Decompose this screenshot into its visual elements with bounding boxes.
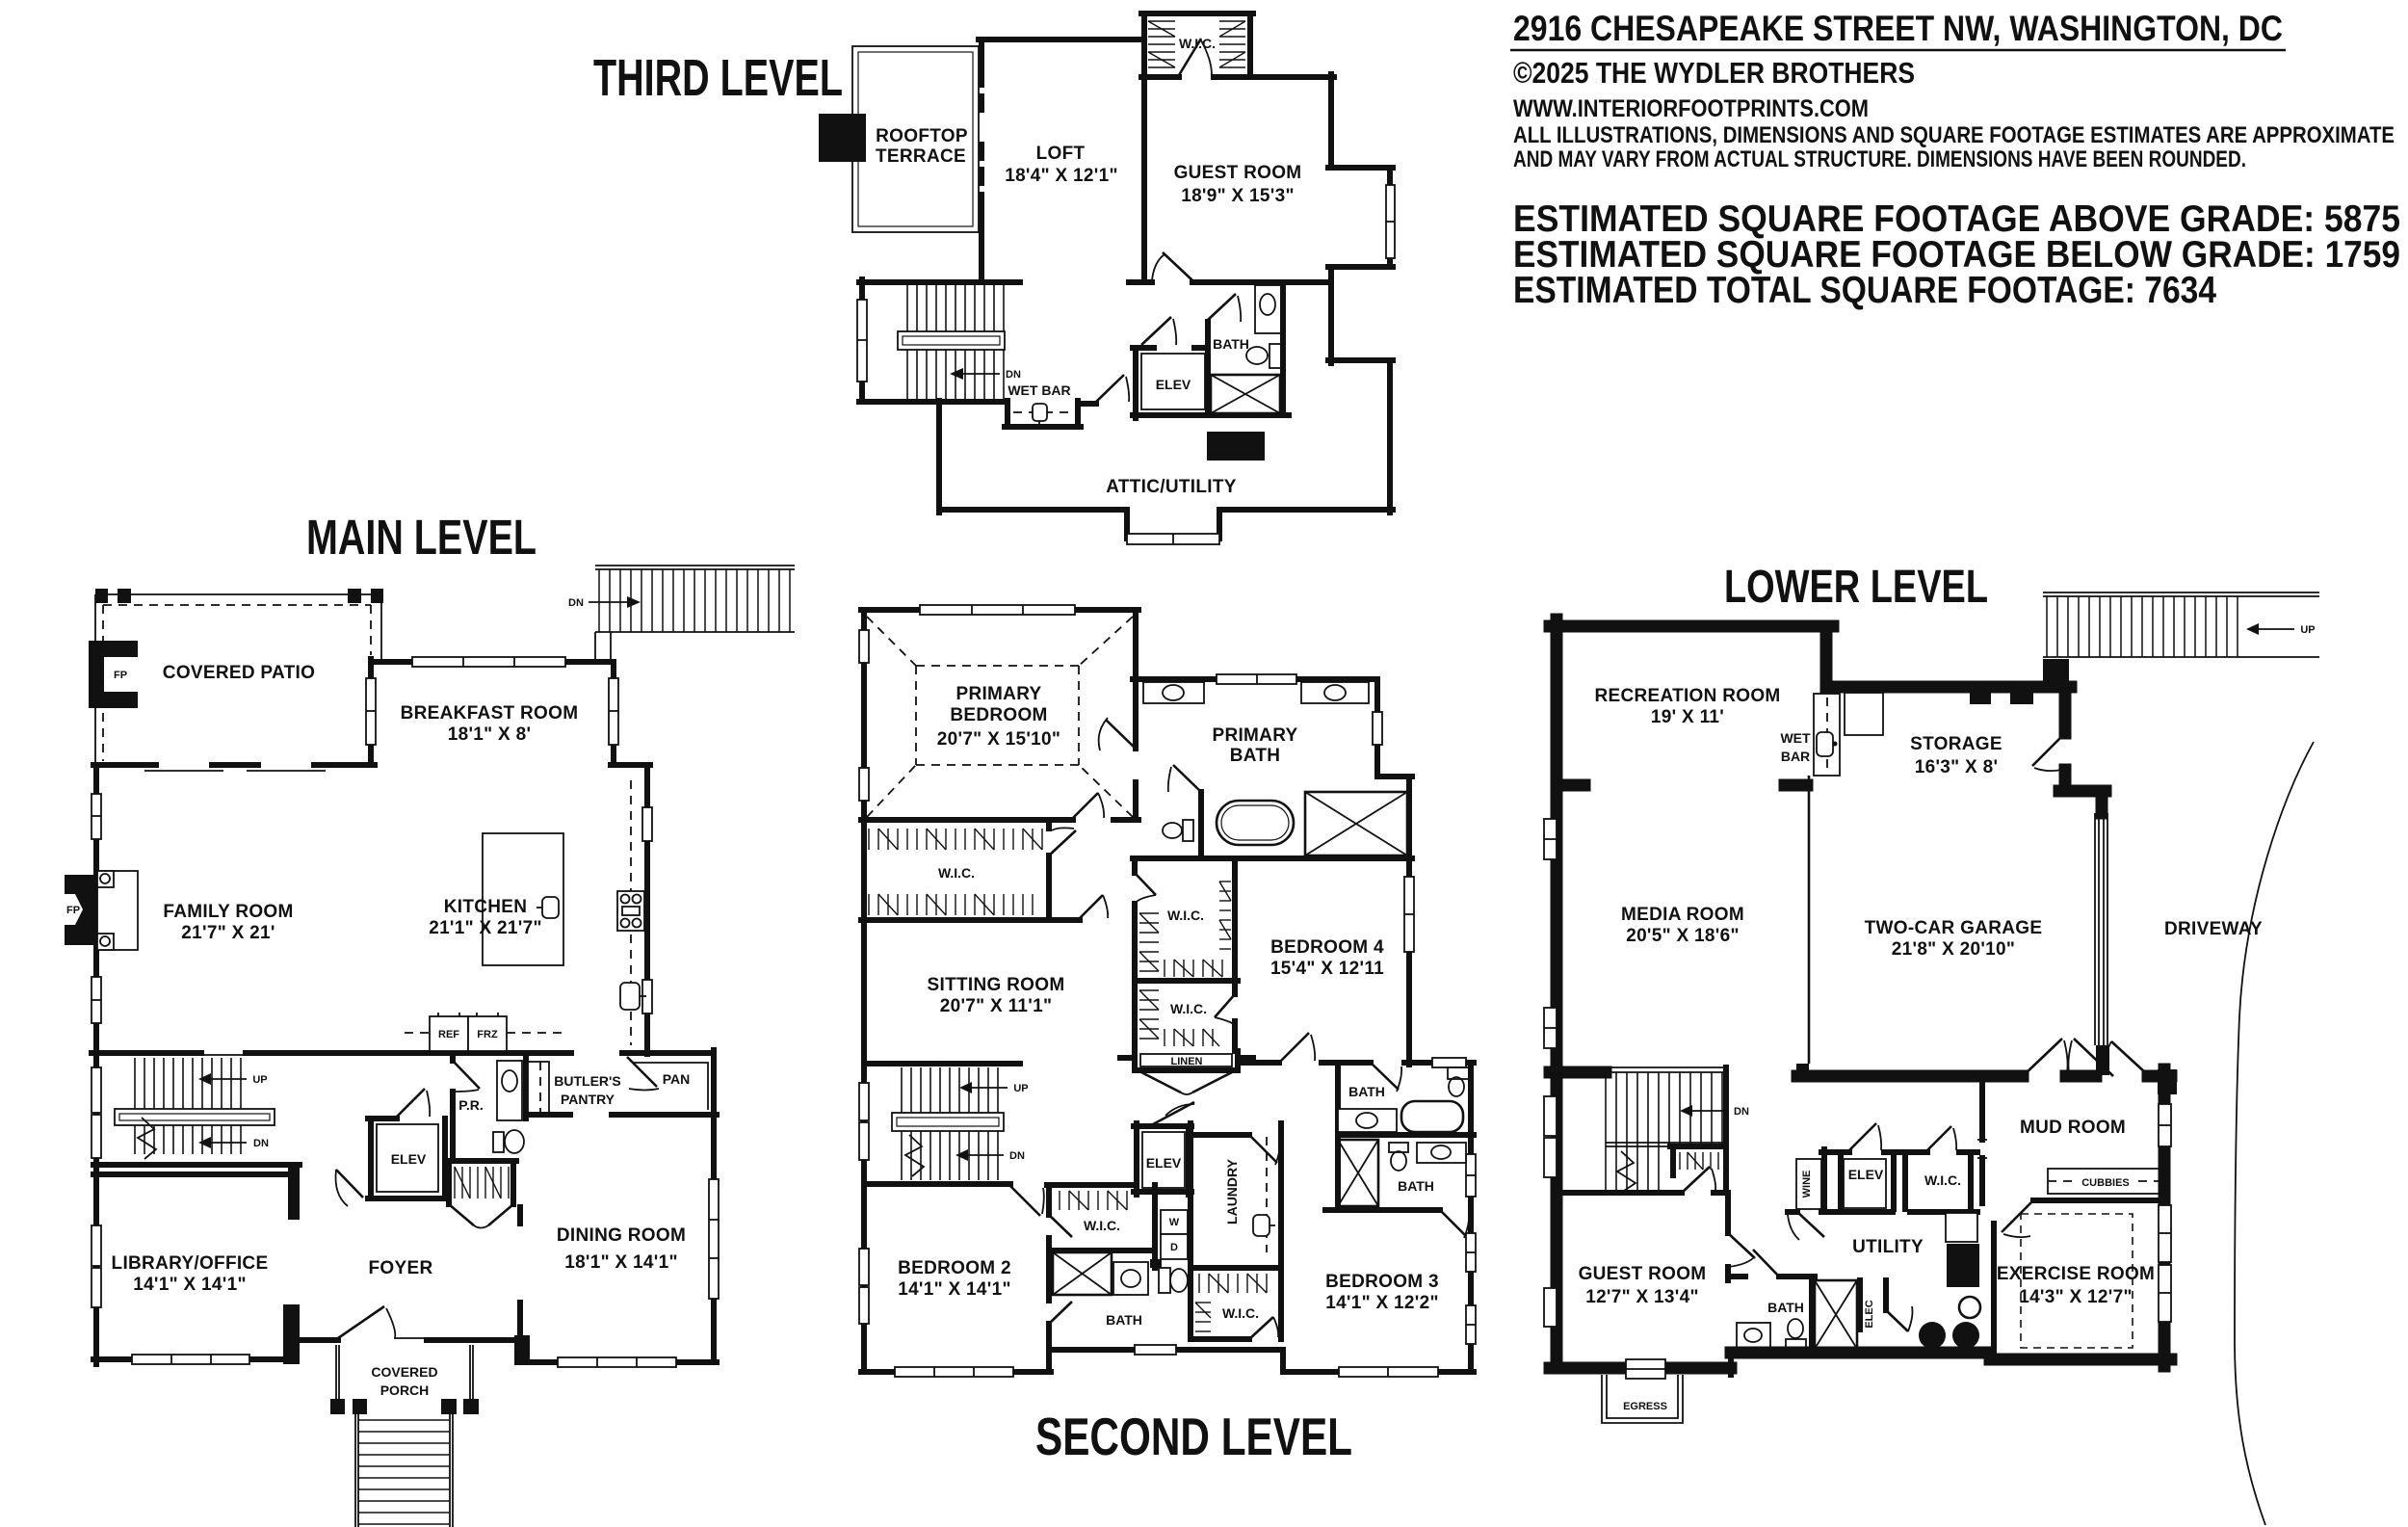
svg-text:BATH: BATH: [1106, 1312, 1142, 1328]
svg-text:PANTRY: PANTRY: [561, 1092, 615, 1107]
svg-text:14'1" X 14'1": 14'1" X 14'1": [133, 1275, 247, 1295]
svg-text:LAUNDRY: LAUNDRY: [1224, 1158, 1240, 1224]
svg-text:14'1" X 14'1": 14'1" X 14'1": [898, 1279, 1011, 1300]
svg-text:BATH: BATH: [1348, 1084, 1385, 1099]
svg-text:21'8" X 20'10": 21'8" X 20'10": [1892, 939, 2015, 960]
svg-text:GUEST ROOM: GUEST ROOM: [1174, 163, 1302, 183]
svg-text:W: W: [1169, 1217, 1180, 1228]
svg-text:WET BAR: WET BAR: [1008, 382, 1070, 398]
svg-text:W.I.C.: W.I.C.: [1924, 1172, 1961, 1188]
svg-text:18'9" X 15'3": 18'9" X 15'3": [1181, 186, 1295, 206]
svg-text:FAMILY ROOM: FAMILY ROOM: [163, 902, 293, 922]
svg-text:BUTLER'S: BUTLER'S: [554, 1073, 620, 1089]
svg-text:19' X 11': 19' X 11': [1651, 707, 1724, 727]
svg-text:PRIMARY: PRIMARY: [1212, 725, 1297, 746]
svg-text:STORAGE: STORAGE: [1910, 734, 2002, 754]
svg-text:ELEV: ELEV: [391, 1151, 427, 1167]
svg-text:ROOFTOP: ROOFTOP: [876, 126, 968, 146]
svg-text:BREAKFAST ROOM: BREAKFAST ROOM: [401, 703, 579, 724]
svg-text:20'7" X 11'1": 20'7" X 11'1": [940, 996, 1053, 1016]
svg-text:EGRESS: EGRESS: [1623, 1401, 1667, 1412]
svg-text:BATH: BATH: [1398, 1178, 1434, 1194]
svg-text:UP: UP: [252, 1074, 267, 1086]
svg-text:WWW.INTERIORFOOTPRINTS.COM: WWW.INTERIORFOOTPRINTS.COM: [1513, 95, 1869, 122]
svg-text:SITTING ROOM: SITTING ROOM: [928, 975, 1065, 995]
svg-text:MEDIA ROOM: MEDIA ROOM: [1621, 905, 1744, 925]
svg-text:UP: UP: [2300, 624, 2315, 636]
svg-text:UTILITY: UTILITY: [1852, 1237, 1924, 1257]
svg-text:UP: UP: [1013, 1083, 1028, 1094]
svg-text:21'7" X 21': 21'7" X 21': [181, 923, 275, 943]
svg-text:BAR: BAR: [1781, 749, 1810, 764]
svg-text:BEDROOM 4: BEDROOM 4: [1270, 937, 1384, 958]
svg-text:DN: DN: [568, 597, 584, 609]
svg-text:DN: DN: [1006, 369, 1021, 381]
svg-text:14'3" X 12'7": 14'3" X 12'7": [2019, 1287, 2133, 1307]
svg-text:14'1" X 12'2": 14'1" X 12'2": [1325, 1293, 1439, 1313]
svg-text:BEDROOM: BEDROOM: [950, 705, 1047, 725]
svg-text:LINEN: LINEN: [1171, 1056, 1203, 1067]
svg-text:TERRACE: TERRACE: [876, 146, 966, 167]
svg-text:20'5" X 18'6": 20'5" X 18'6": [1626, 926, 1740, 946]
svg-text:ATTIC/UTILITY: ATTIC/UTILITY: [1106, 477, 1236, 497]
svg-text:RECREATION ROOM: RECREATION ROOM: [1594, 686, 1780, 706]
svg-text:WINE: WINE: [1801, 1171, 1813, 1198]
svg-text:COVERED PATIO: COVERED PATIO: [163, 663, 315, 683]
svg-text:21'1" X 21'7": 21'1" X 21'7": [429, 918, 542, 938]
svg-text:PORCH: PORCH: [380, 1382, 430, 1398]
svg-text:15'4" X 12'11: 15'4" X 12'11: [1270, 959, 1384, 979]
svg-text:PAN: PAN: [663, 1071, 691, 1087]
svg-text:KITCHEN: KITCHEN: [444, 897, 528, 917]
svg-text:©2025 THE WYDLER BROTHERS: ©2025 THE WYDLER BROTHERS: [1513, 56, 1915, 90]
svg-text:ALL ILLUSTRATIONS, DIMENSIONS: ALL ILLUSTRATIONS, DIMENSIONS AND SQUARE…: [1513, 122, 2395, 148]
svg-text:BEDROOM 3: BEDROOM 3: [1325, 1272, 1439, 1292]
svg-text:P.R.: P.R.: [458, 1097, 483, 1113]
svg-text:MAIN LEVEL: MAIN LEVEL: [306, 510, 537, 565]
svg-text:12'7" X 13'4": 12'7" X 13'4": [1585, 1287, 1699, 1307]
svg-text:W.I.C.: W.I.C.: [1167, 908, 1204, 923]
svg-text:PRIMARY: PRIMARY: [955, 684, 1041, 704]
svg-text:2916 CHESAPEAKE STREET NW, WAS: 2916 CHESAPEAKE STREET NW, WASHINGTON, D…: [1513, 9, 2283, 48]
svg-text:EXERCISE ROOM: EXERCISE ROOM: [1997, 1264, 2155, 1284]
svg-text:ELEV: ELEV: [1146, 1155, 1182, 1171]
svg-text:W.I.C.: W.I.C.: [938, 865, 975, 881]
svg-text:FP: FP: [114, 670, 127, 681]
svg-text:DINING ROOM: DINING ROOM: [557, 1225, 686, 1246]
svg-text:ELEV: ELEV: [1848, 1167, 1884, 1182]
svg-text:18'1" X 14'1": 18'1" X 14'1": [564, 1252, 678, 1273]
svg-text:BATH: BATH: [1213, 336, 1249, 352]
svg-text:FP: FP: [66, 905, 80, 916]
svg-text:DN: DN: [1734, 1106, 1749, 1118]
svg-text:AND MAY VARY FROM ACTUAL STRUC: AND MAY VARY FROM ACTUAL STRUCTURE. DIME…: [1513, 146, 2246, 172]
svg-text:16'3" X 8': 16'3" X 8': [1915, 757, 1999, 777]
svg-text:GUEST ROOM: GUEST ROOM: [1579, 1264, 1707, 1284]
svg-text:BEDROOM 2: BEDROOM 2: [898, 1258, 1011, 1278]
svg-text:18'4" X 12'1": 18'4" X 12'1": [1005, 166, 1118, 186]
svg-text:ELEV: ELEV: [1156, 377, 1191, 392]
svg-text:BATH: BATH: [1767, 1300, 1804, 1315]
svg-text:W.I.C.: W.I.C.: [1222, 1305, 1259, 1321]
svg-text:MUD ROOM: MUD ROOM: [2020, 1118, 2126, 1138]
svg-text:20'7" X 15'10": 20'7" X 15'10": [937, 729, 1060, 750]
svg-text:18'1" X 8': 18'1" X 8': [448, 724, 532, 745]
svg-text:REF: REF: [438, 1029, 459, 1040]
svg-text:CUBBIES: CUBBIES: [2081, 1177, 2130, 1189]
svg-text:D: D: [1170, 1242, 1178, 1253]
svg-text:ELEC: ELEC: [1864, 1300, 1875, 1328]
svg-text:LOFT: LOFT: [1036, 144, 1086, 164]
svg-text:LOWER LEVEL: LOWER LEVEL: [1724, 562, 1988, 613]
svg-text:LIBRARY/OFFICE: LIBRARY/OFFICE: [112, 1253, 269, 1274]
svg-text:THIRD LEVEL: THIRD LEVEL: [593, 49, 843, 107]
svg-text:SECOND LEVEL: SECOND LEVEL: [1035, 1407, 1352, 1466]
svg-text:FRZ: FRZ: [477, 1029, 498, 1040]
svg-text:DN: DN: [253, 1138, 269, 1149]
svg-text:W.I.C.: W.I.C.: [1170, 1001, 1207, 1016]
svg-text:W.I.C.: W.I.C.: [1084, 1218, 1120, 1233]
svg-text:BATH: BATH: [1230, 746, 1281, 766]
svg-text:FOYER: FOYER: [369, 1258, 433, 1278]
svg-text:ESTIMATED TOTAL SQUARE FOOTAGE: ESTIMATED TOTAL SQUARE FOOTAGE: 7634: [1513, 270, 2216, 311]
svg-text:COVERED: COVERED: [371, 1364, 437, 1380]
svg-text:TWO-CAR GARAGE: TWO-CAR GARAGE: [1865, 918, 2043, 938]
svg-text:WET: WET: [1780, 730, 1811, 746]
svg-text:DN: DN: [1009, 1150, 1025, 1162]
